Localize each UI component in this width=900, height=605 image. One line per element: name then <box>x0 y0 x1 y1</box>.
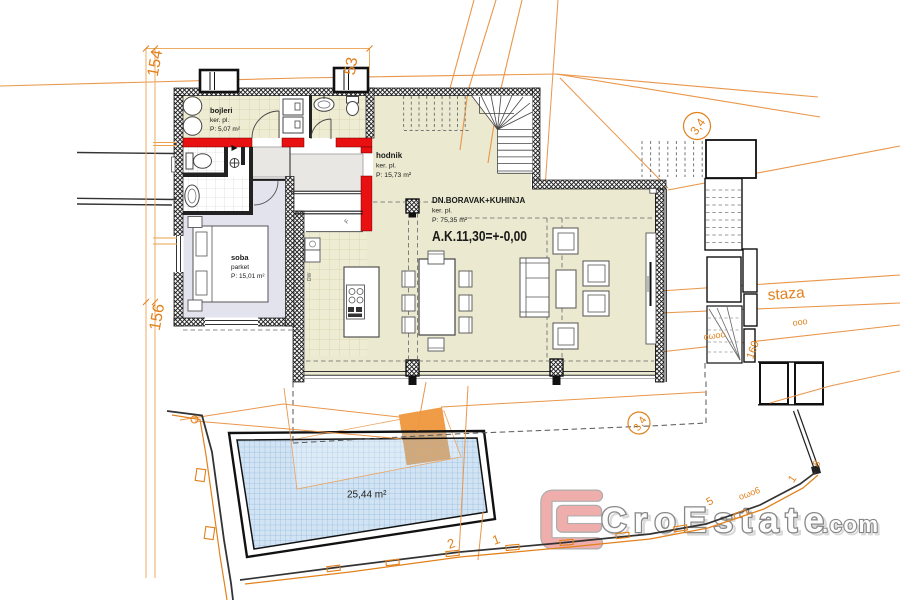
svg-text:P: 5,07 m²: P: 5,07 m² <box>210 126 241 133</box>
svg-text:.com: .com <box>822 512 878 537</box>
svg-text:oοο: oοο <box>792 316 808 328</box>
svg-text:ker. pl.: ker. pl. <box>432 208 452 215</box>
svg-text:hodnik: hodnik <box>376 151 403 160</box>
svg-text:soba: soba <box>231 253 249 262</box>
svg-text:ker. pl.: ker. pl. <box>376 163 396 170</box>
svg-text:ker. pl.: ker. pl. <box>210 117 229 124</box>
svg-text:parket: parket <box>231 264 249 271</box>
svg-text:staza: staza <box>767 284 806 304</box>
svg-text:25,44 m²: 25,44 m² <box>347 490 387 501</box>
svg-text:53: 53 <box>342 56 362 77</box>
svg-text:P: 15,73 m²: P: 15,73 m² <box>376 172 412 179</box>
svg-text:A.K.11,30=+-0,00: A.K.11,30=+-0,00 <box>432 229 527 245</box>
svg-text:P: 75,35 m²: P: 75,35 m² <box>432 217 468 224</box>
svg-text:bojleri: bojleri <box>210 106 233 115</box>
svg-text:P: 15,01 m²: P: 15,01 m² <box>231 273 265 280</box>
svg-text:DN.BORAVAK+KUHINJA: DN.BORAVAK+KUHINJA <box>432 196 525 205</box>
svg-text:DW: DW <box>307 272 313 281</box>
